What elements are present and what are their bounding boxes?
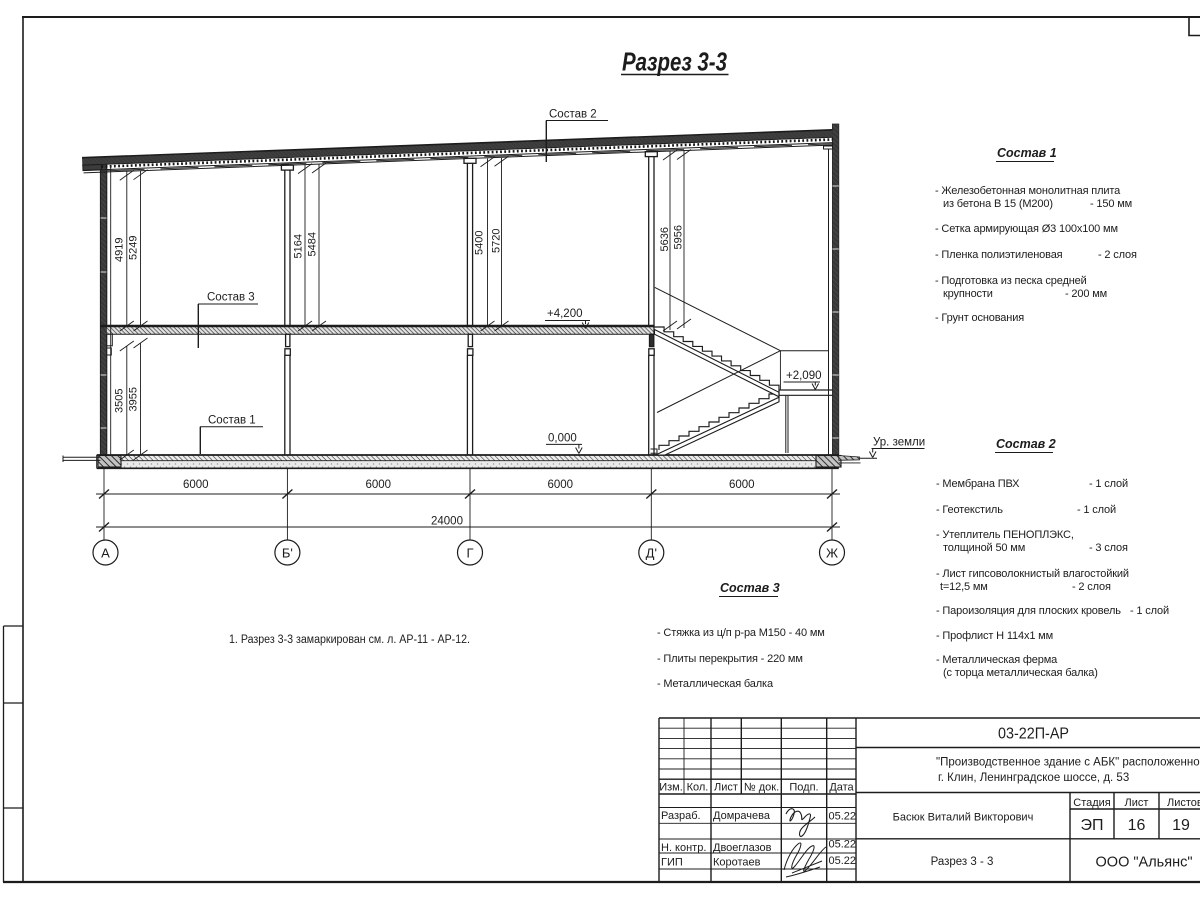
svg-text:6000: 6000 xyxy=(183,479,209,491)
svg-text:Д': Д' xyxy=(646,546,657,561)
svg-text:- Сетка армирующая Ø3 100х100: - Сетка армирующая Ø3 100х100 мм xyxy=(935,223,1118,235)
svg-text:ГИП: ГИП xyxy=(661,857,683,869)
svg-text:5956: 5956 xyxy=(673,225,685,249)
svg-text:5249: 5249 xyxy=(128,236,140,260)
svg-text:- 200 мм: - 200 мм xyxy=(1065,288,1107,300)
svg-text:Состав 1: Состав 1 xyxy=(997,146,1057,160)
svg-text:толщиной 50 мм: толщиной 50 мм xyxy=(943,542,1025,554)
svg-text:5164: 5164 xyxy=(293,234,305,258)
svg-text:- Профлист Н 114х1 мм: - Профлист Н 114х1 мм xyxy=(936,630,1053,642)
svg-text:Дата: Дата xyxy=(829,782,854,794)
svg-text:- 3 слоя: - 3 слоя xyxy=(1089,542,1128,554)
svg-text:Состав 2: Состав 2 xyxy=(549,109,597,121)
svg-text:Состав 2: Состав 2 xyxy=(996,437,1056,451)
svg-text:- Пленка полиэтиленовая: - Пленка полиэтиленовая xyxy=(935,249,1063,261)
svg-text:- 2 слоя: - 2 слоя xyxy=(1072,581,1111,593)
svg-text:19: 19 xyxy=(1172,817,1190,834)
svg-text:Разрез 3-3: Разрез 3-3 xyxy=(622,47,727,77)
svg-text:"Производственное здание с АБК: "Производственное здание с АБК" располож… xyxy=(936,757,1200,769)
svg-text:05.22: 05.22 xyxy=(829,855,857,867)
svg-text:Разраб.: Разраб. xyxy=(661,810,701,822)
svg-text:3505: 3505 xyxy=(113,389,125,413)
svg-text:Разрез 3 - 3: Разрез 3 - 3 xyxy=(931,856,994,868)
svg-text:- 150 мм: - 150 мм xyxy=(1090,198,1132,210)
svg-text:Г: Г xyxy=(466,546,473,561)
svg-text:t=12,5 мм: t=12,5 мм xyxy=(940,581,988,593)
svg-text:0,000: 0,000 xyxy=(548,433,577,445)
svg-text:из бетона В 15 (М200): из бетона В 15 (М200) xyxy=(943,198,1053,210)
svg-text:1. Разрез 3-3 замаркирован см.: 1. Разрез 3-3 замаркирован см. л. АР-11 … xyxy=(229,634,470,646)
svg-text:ЭП: ЭП xyxy=(1081,817,1104,834)
svg-text:- Геотекстиль: - Геотекстиль xyxy=(936,504,1003,516)
svg-text:Лист: Лист xyxy=(1125,797,1149,809)
svg-text:- Железобетонная монолитная п: - Железобетонная монолитная плита xyxy=(935,185,1121,197)
svg-text:Ур. земли: Ур. земли xyxy=(873,437,925,449)
svg-text:- 2 слоя: - 2 слоя xyxy=(1098,249,1137,261)
svg-text:5720: 5720 xyxy=(491,229,503,253)
svg-text:- Пароизоляция для плоских кро: - Пароизоляция для плоских кровель xyxy=(936,605,1121,617)
svg-text:5400: 5400 xyxy=(474,231,486,255)
svg-text:4919: 4919 xyxy=(113,238,125,262)
svg-text:Стадия: Стадия xyxy=(1073,797,1111,809)
svg-text:6000: 6000 xyxy=(548,479,574,491)
svg-text:- 1 слой: - 1 слой xyxy=(1089,478,1128,490)
svg-text:- Подготовка из песка средней: - Подготовка из песка средней xyxy=(935,275,1087,287)
svg-text:05.22: 05.22 xyxy=(829,811,857,823)
svg-text:А: А xyxy=(101,546,110,561)
svg-text:Изм.: Изм. xyxy=(659,782,683,794)
svg-text:крупности: крупности xyxy=(943,288,993,300)
svg-text:Кол.: Кол. xyxy=(687,782,709,794)
svg-text:Состав 1: Состав 1 xyxy=(208,415,256,427)
svg-text:- Лист гипсоволокнистый влагос: - Лист гипсоволокнистый влагостойкий xyxy=(936,568,1129,580)
svg-text:+4,200: +4,200 xyxy=(547,308,583,320)
svg-text:Коротаев: Коротаев xyxy=(713,857,761,869)
svg-text:(с торца металлическая балка): (с торца металлическая балка) xyxy=(943,667,1098,679)
svg-text:Басюк Виталий Викторович: Басюк Виталий Викторович xyxy=(893,812,1034,824)
svg-text:3955: 3955 xyxy=(128,387,140,411)
svg-text:Б': Б' xyxy=(282,546,293,561)
svg-text:- Утеплитель ПЕНОПЛЭКС,: - Утеплитель ПЕНОПЛЭКС, xyxy=(936,529,1074,541)
svg-text:№ док.: № док. xyxy=(744,782,779,794)
svg-text:- Грунт основания: - Грунт основания xyxy=(935,312,1024,324)
svg-text:5636: 5636 xyxy=(659,227,671,251)
svg-text:Состав 3: Состав 3 xyxy=(207,292,255,304)
svg-text:ООО "Альянс": ООО "Альянс" xyxy=(1096,855,1193,871)
svg-text:Ж: Ж xyxy=(826,546,838,561)
svg-text:- Металлическая ферма: - Металлическая ферма xyxy=(936,654,1058,666)
svg-text:Лист: Лист xyxy=(714,782,738,794)
svg-text:6000: 6000 xyxy=(729,479,755,491)
svg-text:03-22П-АР: 03-22П-АР xyxy=(998,726,1069,743)
svg-text:Состав 3: Состав 3 xyxy=(720,581,780,595)
svg-text:- Металлическая балка: - Металлическая балка xyxy=(657,678,774,690)
svg-text:Двоеглазов: Двоеглазов xyxy=(713,842,772,854)
svg-text:16: 16 xyxy=(1128,817,1146,834)
svg-text:- Мембрана ПВХ: - Мембрана ПВХ xyxy=(936,478,1020,490)
svg-text:г. Клин, Ленинградское шоссе,: г. Клин, Ленинградское шоссе, д. 53 xyxy=(938,772,1129,784)
svg-text:24000: 24000 xyxy=(431,516,463,528)
svg-text:- 1 слой: - 1 слой xyxy=(1130,605,1169,617)
svg-text:- 1 слой: - 1 слой xyxy=(1077,504,1116,516)
svg-text:- Плиты перекрытия - 220 мм: - Плиты перекрытия - 220 мм xyxy=(657,653,803,665)
svg-text:Н. контр.: Н. контр. xyxy=(661,842,706,854)
svg-text:05.22: 05.22 xyxy=(829,839,857,851)
svg-text:Домрачева: Домрачева xyxy=(713,810,771,822)
svg-text:5484: 5484 xyxy=(307,232,319,256)
svg-text:6000: 6000 xyxy=(366,479,392,491)
svg-text:Подп.: Подп. xyxy=(789,782,818,794)
svg-text:+2,090: +2,090 xyxy=(786,370,822,382)
svg-text:Листов: Листов xyxy=(1167,797,1200,809)
svg-text:- Стяжка из ц/п р-ра М150 - 40: - Стяжка из ц/п р-ра М150 - 40 мм xyxy=(657,627,825,639)
